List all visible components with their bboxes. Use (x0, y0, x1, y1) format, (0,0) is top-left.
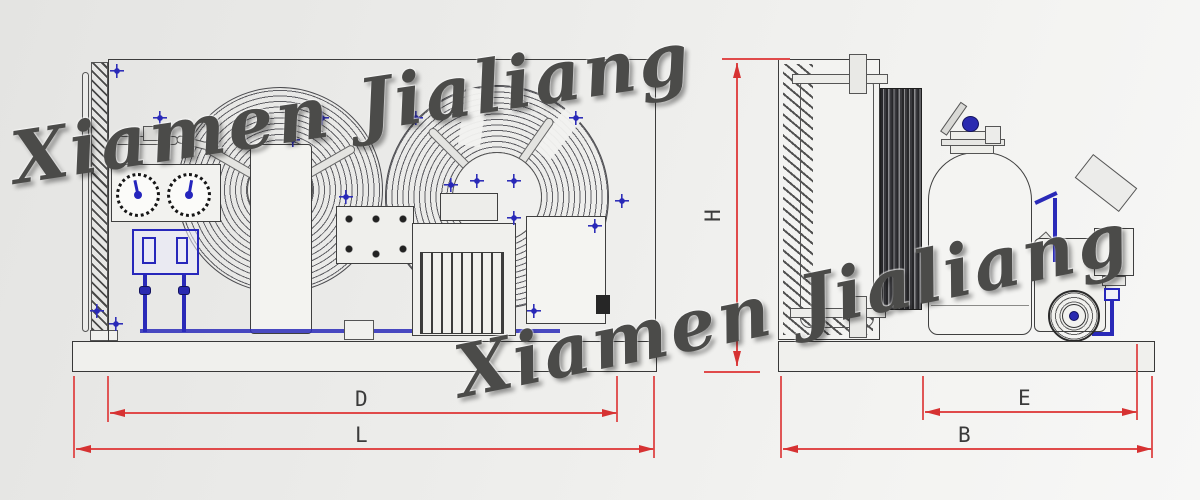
dimension-line-d (110, 412, 617, 414)
dimension-line-e (925, 411, 1137, 413)
technical-drawing-canvas: D L H E B Xiamen Jialiang Xiamen Jialian… (0, 0, 1200, 500)
arrowhead-icon (1137, 445, 1152, 453)
arrowhead-icon (783, 445, 798, 453)
arrowhead-icon (1122, 408, 1137, 416)
arrowhead-icon (602, 409, 617, 417)
dimension-line-h (736, 63, 738, 366)
arrowhead-icon (925, 408, 940, 416)
arrowhead-icon (76, 445, 91, 453)
extension-line (73, 376, 75, 458)
dimension-label-h: H (701, 208, 725, 222)
dimension-line-l (76, 448, 654, 450)
extension-line (107, 376, 109, 422)
extension-line (922, 376, 924, 420)
arrowhead-icon (110, 409, 125, 417)
dimension-label-b: B (958, 423, 972, 447)
dimension-line-b (783, 448, 1152, 450)
extension-tick (722, 58, 790, 60)
extension-tick (704, 371, 760, 373)
arrowhead-icon (733, 63, 741, 78)
dimension-layer: D L H E B (0, 0, 1200, 500)
dimension-label-d: D (355, 387, 369, 411)
dimension-label-e: E (1018, 386, 1032, 410)
dimension-label-l: L (355, 423, 369, 447)
extension-line (780, 376, 782, 458)
arrowhead-icon (733, 351, 741, 366)
arrowhead-icon (639, 445, 654, 453)
